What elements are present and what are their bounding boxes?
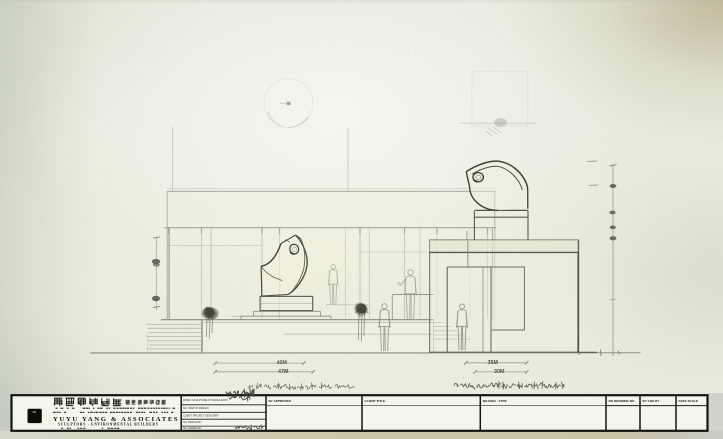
- svg-text:NO. DRAWN BY: NO. DRAWN BY: [183, 427, 202, 430]
- svg-text:CLIENT TITLE: CLIENT TITLE: [365, 399, 386, 403]
- svg-text:DATE SCALE: DATE SCALE: [679, 399, 699, 403]
- svg-text:NO DWG - TYPE: NO DWG - TYPE: [483, 399, 507, 403]
- svg-text:NO. DESIGN BY: NO. DESIGN BY: [183, 421, 202, 424]
- svg-text:NO. SKETCH DESIGN: NO. SKETCH DESIGN: [183, 407, 209, 410]
- svg-text:40M: 40M: [276, 360, 287, 366]
- svg-text:CLIENT: PROJECT DESIGNER: CLIENT: PROJECT DESIGNER: [183, 414, 219, 417]
- svg-text:NO DRAWING NO: NO DRAWING NO: [609, 399, 636, 403]
- svg-text:47M: 47M: [278, 369, 289, 375]
- svg-text:BY APPROVED: BY APPROVED: [269, 399, 292, 403]
- svg-text:30M: 30M: [494, 369, 505, 375]
- svg-text:SCULPTORS · ENVIRONMENTAL B: SCULPTORS · ENVIRONMENTAL BUILDERS: [58, 423, 158, 427]
- svg-text:WORK: SCULPTURE AT OSAKA EXPO: WORK: SCULPTURE AT OSAKA EXPO: [183, 399, 228, 402]
- svg-text:BY CHK BY: BY CHK BY: [643, 399, 661, 403]
- svg-text:35M: 35M: [488, 360, 499, 366]
